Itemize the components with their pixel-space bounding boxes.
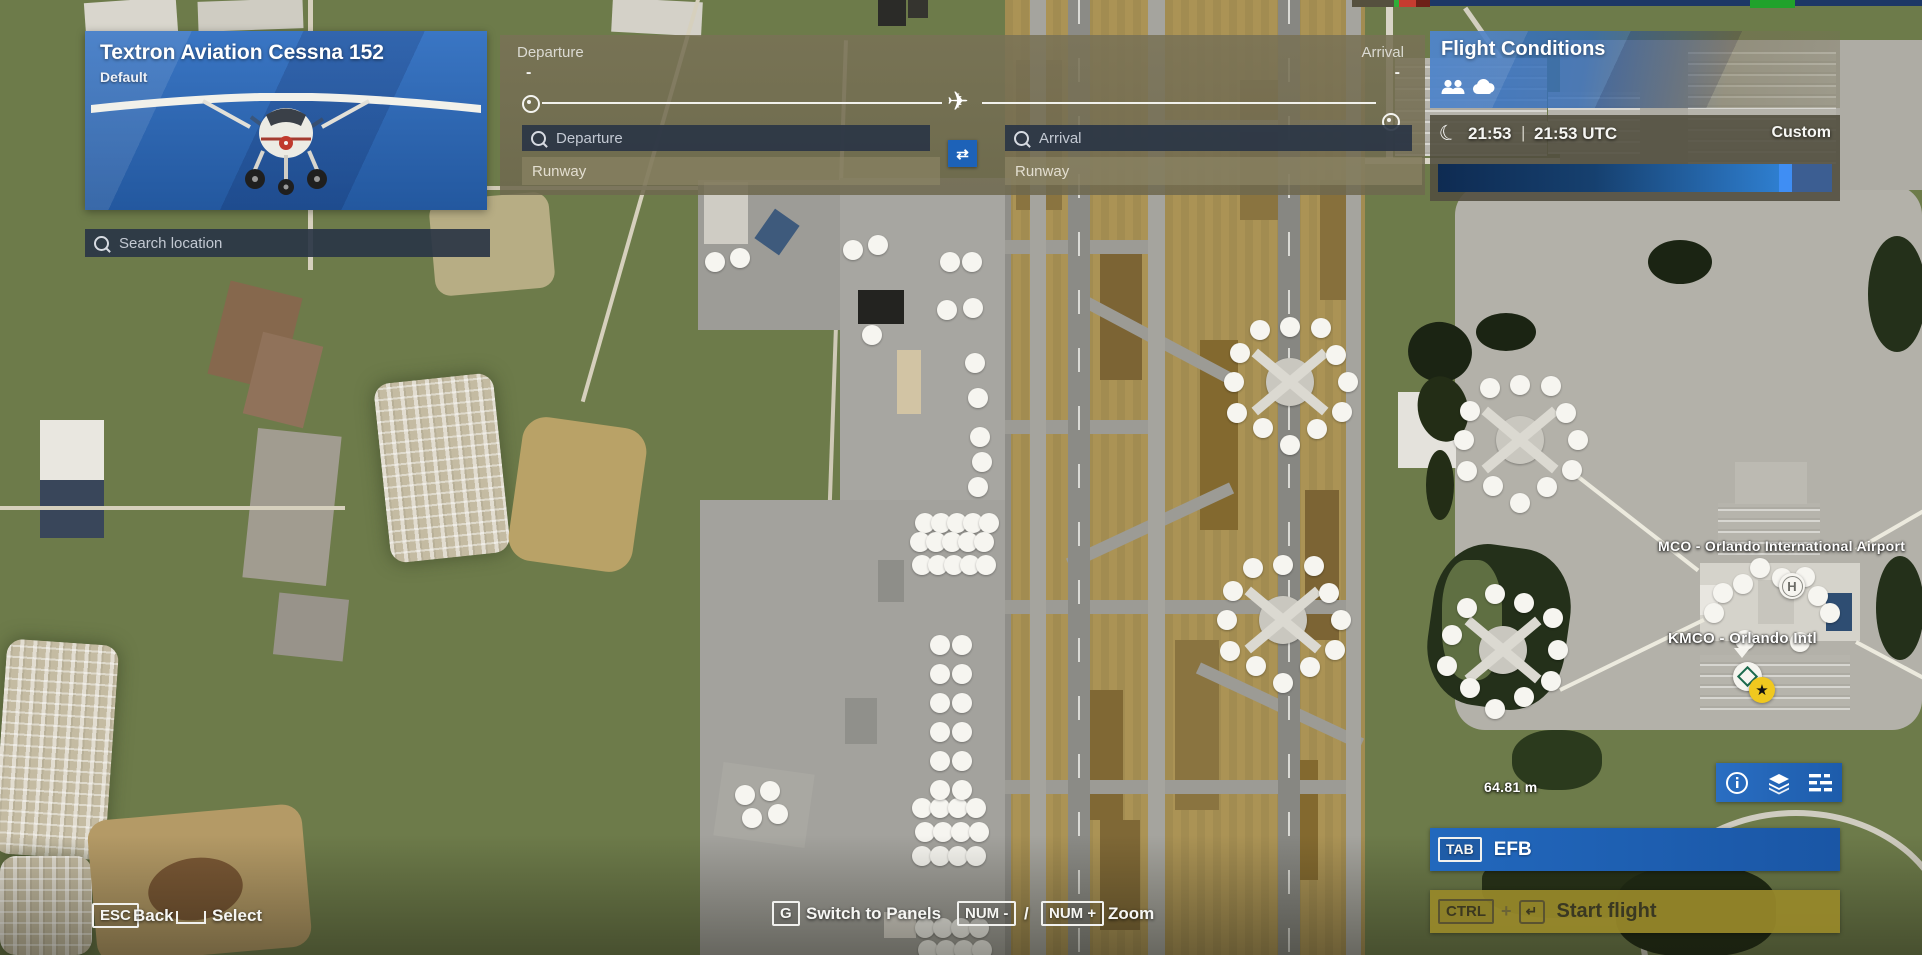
arrival-runway-field[interactable]: Runway [1005,157,1422,185]
parking-spot-dot [1562,460,1582,480]
parking-spot-dot [1457,598,1477,618]
arrival-label: Arrival [1361,44,1404,61]
departure-runway-field[interactable]: Runway [522,157,940,185]
select-hint-label: Select [212,906,262,926]
start-flight-key-badge: CTRL [1438,899,1494,924]
parking-spot-dot [1326,345,1346,365]
top-overlay-strip [1399,0,1416,7]
parking-spot-dot [1514,593,1534,613]
parking-spot-dot [970,427,990,447]
route-plane-icon: ✈ [947,88,969,114]
parking-spot-dot [1460,678,1480,698]
parking-spot-dot [1307,419,1327,439]
flight-conditions-body: ☾ 21:53 | 21:53 UTC Custom [1430,115,1840,201]
parking-spot-dot [735,785,755,805]
flight-plan-panel: Departure Arrival - - ✈ Runway Runway ⇄ [500,35,1425,195]
parking-spot-dot [1250,320,1270,340]
parking-spot-dot [1437,656,1457,676]
parking-spot-dot [1253,418,1273,438]
parking-spot-dot [1304,556,1324,576]
parking-spot-dot [952,780,972,800]
parking-spot-dot [1338,372,1358,392]
top-overlay-strip [1416,0,1430,7]
time-slider[interactable] [1438,164,1832,192]
time-separator: | [1521,123,1525,143]
parking-spot-dot [1280,317,1300,337]
parking-spot-dot [768,804,788,824]
time-of-day-icon: ☾ [1436,119,1462,149]
parking-spot-dot [912,798,932,818]
parking-spot-dot [843,240,863,260]
parking-spot-dot [937,300,957,320]
start-flight-button[interactable]: CTRL + ↵ Start flight [1430,890,1840,933]
parking-spot-dot [952,693,972,713]
top-overlay-strip [1430,0,1922,6]
swap-airports-button[interactable]: ⇄ [948,140,977,167]
efb-button[interactable]: TAB EFB [1430,828,1840,871]
parking-spot-dot [968,388,988,408]
panels-hint-label: Switch to Panels [806,904,941,924]
parking-spot-dot [1319,583,1339,603]
parking-spot-dot [730,248,750,268]
parking-spot-dot [948,798,968,818]
efb-label: EFB [1494,839,1532,861]
parking-spot-dot [930,780,950,800]
parking-spot-dot [1750,558,1770,578]
zoom-out-key-badge: NUM - [957,901,1016,926]
parking-spot-dot [1454,430,1474,450]
parking-spot-dot [930,635,950,655]
arrival-value: - [1395,68,1400,78]
parking-spot-dot [1510,493,1530,513]
parking-spot-dot [965,353,985,373]
zoom-in-key-badge: NUM + [1041,901,1104,926]
departure-label: Departure [517,44,584,61]
star-glyph: ★ [1755,683,1768,698]
info-button[interactable] [1717,763,1757,802]
parking-spot-dot [1483,476,1503,496]
parking-spot-dot [1217,610,1237,630]
flight-conditions-title: Flight Conditions [1441,38,1605,61]
route-line [542,102,942,104]
back-hint-label: Back [133,906,174,926]
parking-spot-dot [952,635,972,655]
parking-spot-dot [1300,657,1320,677]
flight-conditions-header[interactable]: Flight Conditions [1430,31,1840,108]
parking-spot-dot [1224,372,1244,392]
parking-spot-dot [760,781,780,801]
parking-spot-dot [1485,584,1505,604]
parking-spot-dot [1246,656,1266,676]
parking-spot-dot [930,798,950,818]
parking-spot-dot [1280,435,1300,455]
back-key-badge: ESC [92,903,139,928]
parking-spot-dot [1220,641,1240,661]
departure-search-input[interactable] [554,129,930,148]
arrival-search-input[interactable] [1037,129,1412,148]
parking-spot-dot [1325,640,1345,660]
parking-spot-dot [930,722,950,742]
parking-spot-dot [1273,555,1293,575]
parking-spot-dot [868,235,888,255]
parking-spot-dot [1460,401,1480,421]
parking-spot-dot [1733,574,1753,594]
parking-spot-dot [1457,461,1477,481]
enter-key-icon: ↵ [1519,900,1545,924]
helipad-marker-icon[interactable]: H [1779,573,1805,599]
parking-spot-dot [968,477,988,497]
parking-spot-dot [1514,687,1534,707]
top-overlay-strip [1750,0,1795,8]
arrival-search-field[interactable] [1005,125,1412,151]
parking-spot-dot [1541,376,1561,396]
parking-spot-dot [1480,378,1500,398]
parking-spot-dot [974,532,994,552]
search-icon [94,236,109,251]
facility-pointer-icon [1734,648,1750,658]
multiplayer-icon [1440,79,1466,95]
panels-key-badge: G [772,901,800,926]
parking-spot-dot [1510,375,1530,395]
parking-spot-dot [1442,625,1462,645]
parking-spot-dot [1227,403,1247,423]
arrival-runway-placeholder: Runway [1015,163,1069,180]
zoom-separator: / [1024,904,1029,924]
parking-spot-dot [1537,477,1557,497]
parking-spot-dot [979,513,999,533]
route-start-handle[interactable] [522,95,540,113]
zoom-hint-label: Zoom [1108,904,1154,924]
parking-spot-dot [1311,318,1331,338]
parking-spot-dot [930,664,950,684]
parking-spot-dot [963,298,983,318]
departure-search-field[interactable] [522,125,930,151]
parking-spot-dot [1230,343,1250,363]
parking-spot-dot [962,252,982,272]
parking-spot-dot [1713,583,1733,603]
elevation-label: 64.81 m [1484,779,1537,795]
parking-spot-dot [1556,403,1576,423]
parking-spot-dot [742,808,762,828]
location-search-field[interactable] [85,229,490,257]
search-icon [1014,131,1029,146]
swap-icon: ⇄ [956,145,969,163]
parking-spot-dot [705,252,725,272]
spacebar-icon [176,911,206,924]
parking-spot-dot [1331,610,1351,630]
parking-spot-dot [1704,603,1724,623]
aircraft-card[interactable]: Textron Aviation Cessna 152 Default [85,31,487,210]
parking-spot-dot [1332,402,1352,422]
map-tools-bar [1716,763,1842,802]
utc-time: 21:53 UTC [1534,124,1617,144]
helipad-letter: H [1782,576,1803,597]
departure-runway-placeholder: Runway [532,163,586,180]
parking-spot-dot [1568,430,1588,450]
start-flight-label: Start flight [1557,900,1657,923]
search-icon [531,131,546,146]
layers-button[interactable] [1759,763,1799,802]
parking-spot-dot [966,798,986,818]
departure-value: - [526,68,531,78]
local-time: 21:53 [1468,124,1511,144]
airport-name-label[interactable]: MCO - Orlando International Airport [1658,538,1905,554]
parking-spot-dot [930,751,950,771]
layers-icon [1767,771,1791,795]
parking-spot-dot [1273,673,1293,693]
parking-spot-dot [930,693,950,713]
facility-name-label[interactable]: KMCO - Orlando Intl [1668,630,1817,647]
msfs-world-map-screen: MCO - Orlando International Airport KMCO… [0,0,1922,955]
star-marker-icon[interactable]: ★ [1749,677,1775,703]
parking-spot-dot [976,555,996,575]
route-line [982,102,1376,104]
info-icon [1725,771,1749,795]
parking-spot-dot [1548,640,1568,660]
parking-spot-dot [972,452,992,472]
time-slider-handle[interactable] [1779,164,1792,192]
parking-spot-dot [1541,671,1561,691]
legend-filter-icon [1808,772,1834,794]
parking-spot-dot [862,325,882,345]
aircraft-subtitle: Default [100,69,147,85]
parking-spot-dot [1808,586,1828,606]
parking-spot-dot [1543,608,1563,628]
aircraft-title: Textron Aviation Cessna 152 [100,41,384,65]
efb-key-badge: TAB [1438,837,1482,862]
parking-spot-dot [1820,603,1840,623]
top-overlay-strip [1352,0,1398,7]
weather-preset-label[interactable]: Custom [1771,124,1831,142]
parking-spot-dot [1243,558,1263,578]
parking-spot-dot [952,722,972,742]
parking-spot-dot [1223,581,1243,601]
weather-icon [1472,79,1496,95]
parking-spot-dot [952,664,972,684]
parking-spot-dot [940,252,960,272]
start-flight-plus: + [1501,901,1512,922]
parking-spot-dot [952,751,972,771]
parking-spot-dot [1485,699,1505,719]
map-legend-button[interactable] [1801,763,1841,802]
location-search-input[interactable] [117,234,490,253]
